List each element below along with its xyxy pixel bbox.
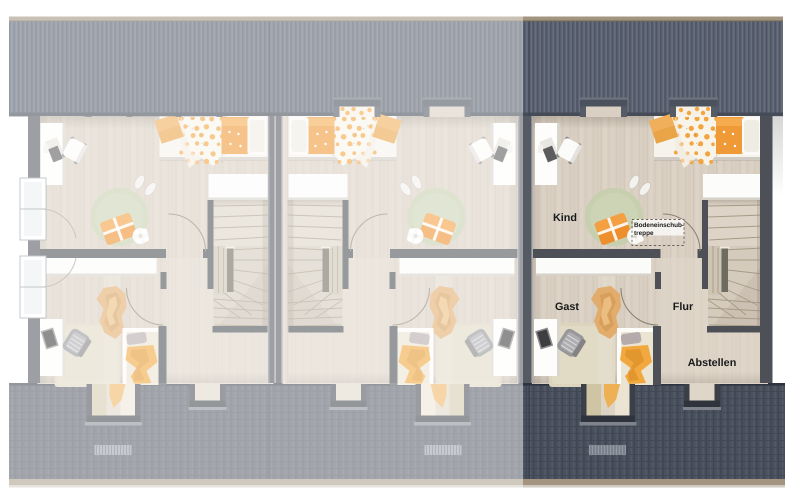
svg-text:Gast: Gast xyxy=(555,301,579,313)
svg-text:Kind: Kind xyxy=(553,212,577,224)
svg-text:treppe: treppe xyxy=(634,230,654,237)
svg-text:Bodeneinschub-: Bodeneinschub- xyxy=(634,222,684,229)
svg-text:Abstellen: Abstellen xyxy=(688,357,737,369)
svg-text:Flur: Flur xyxy=(673,301,694,313)
